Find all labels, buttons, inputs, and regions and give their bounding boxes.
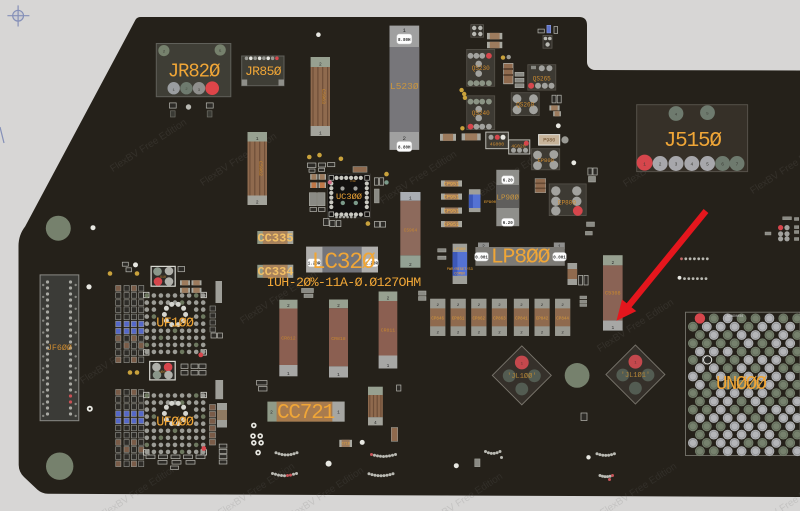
svg-text:2: 2	[387, 296, 390, 302]
svg-text:UNØØØ: UNØØØ	[716, 373, 767, 395]
svg-text:1: 1	[409, 195, 412, 201]
svg-text:CC335: CC335	[257, 231, 293, 245]
svg-text:UF1ØØ: UF1ØØ	[156, 316, 194, 331]
svg-text:4: 4	[690, 162, 693, 168]
svg-text:2: 2	[270, 410, 273, 416]
svg-text:1: 1	[643, 162, 646, 168]
svg-text:U00: U00	[160, 370, 166, 374]
svg-text:2: 2	[256, 200, 259, 206]
svg-text:PWR/RESET/S3: PWR/RESET/S3	[447, 267, 473, 272]
svg-text:CR812: CR812	[281, 336, 296, 342]
svg-text:6.20: 6.20	[503, 180, 514, 184]
svg-text:2: 2	[611, 260, 614, 266]
svg-text:C5964: C5964	[404, 227, 418, 233]
svg-text:LP9ØØ: LP9ØØ	[496, 193, 519, 202]
svg-text:IUH-2Ø%-11A-Ø.Ø127OHM: IUH-2Ø%-11A-Ø.Ø127OHM	[267, 275, 422, 290]
svg-text:CP863: CP863	[493, 318, 506, 322]
svg-text:J515Ø: J515Ø	[664, 130, 722, 153]
svg-text:NAND0000: NAND0000	[727, 315, 743, 319]
svg-text:1: 1	[287, 371, 290, 377]
svg-text:CR818: CR818	[331, 336, 346, 342]
svg-text:4G000: 4G000	[490, 141, 505, 147]
svg-text:UFØØØ: UFØØØ	[156, 415, 194, 430]
svg-text:UC3ØØ: UC3ØØ	[336, 192, 362, 202]
svg-text:COMBO: COMBO	[454, 273, 465, 277]
svg-text:1: 1	[387, 363, 390, 369]
svg-text:L523Ø: L523Ø	[390, 81, 419, 92]
svg-text:EP900: EP900	[484, 201, 497, 205]
svg-text:LP8ØØ: LP8ØØ	[491, 245, 551, 269]
svg-text:1: 1	[319, 131, 322, 137]
svg-text:U10: U10	[160, 275, 166, 279]
svg-text:C5962: C5962	[257, 161, 263, 176]
svg-text:JR85Ø: JR85Ø	[245, 64, 282, 79]
svg-text:0.001: 0.001	[553, 257, 566, 261]
svg-text:7: 7	[736, 162, 739, 168]
svg-text:4: 4	[374, 420, 377, 426]
svg-text:0.001: 0.001	[475, 257, 488, 261]
svg-text:CP951: CP951	[444, 181, 460, 187]
svg-text:2: 2	[287, 303, 290, 309]
svg-text:2: 2	[337, 303, 340, 309]
svg-text:5: 5	[706, 162, 709, 168]
svg-text:1: 1	[611, 325, 614, 331]
svg-text:CP841: CP841	[515, 318, 528, 322]
svg-text:EP800: EP800	[537, 157, 554, 164]
svg-text:8.80H: 8.80H	[398, 146, 411, 150]
svg-text:C718: C718	[342, 443, 350, 447]
svg-text:CP862: CP862	[473, 318, 486, 322]
svg-text:CP846: CP846	[431, 318, 444, 322]
svg-text:EP800: EP800	[558, 200, 576, 207]
svg-text:1: 1	[256, 136, 259, 142]
svg-text:C5368: C5368	[605, 291, 621, 297]
svg-text:6: 6	[721, 162, 724, 168]
svg-text:2: 2	[403, 135, 406, 142]
svg-text:CP951: CP951	[444, 208, 460, 214]
svg-text:P980: P980	[543, 138, 555, 144]
svg-text:2: 2	[319, 62, 322, 68]
svg-text:'JL1ØØ': 'JL1ØØ'	[507, 372, 536, 381]
svg-text:LC32Ø: LC32Ø	[312, 249, 376, 275]
svg-text:CR811: CR811	[381, 328, 396, 334]
svg-text:CP842: CP842	[536, 318, 549, 322]
svg-text:2: 2	[409, 262, 412, 268]
svg-text:3: 3	[675, 162, 678, 168]
svg-text:LP300: LP300	[454, 248, 466, 252]
svg-text:CP951: CP951	[444, 222, 460, 228]
svg-text:2: 2	[659, 162, 662, 168]
svg-text:JF6ØØ: JF6ØØ	[47, 343, 72, 353]
svg-text:JR82Ø: JR82Ø	[168, 61, 220, 83]
svg-text:CC721: CC721	[277, 402, 335, 425]
svg-text:QS240: QS240	[472, 110, 490, 117]
svg-text:CP844: CP844	[556, 318, 569, 322]
svg-text:CP951: CP951	[444, 194, 460, 200]
svg-text:4G020: 4G020	[511, 143, 526, 149]
svg-text:1: 1	[337, 372, 340, 378]
svg-text:8.80H: 8.80H	[398, 39, 411, 43]
svg-text:C30: C30	[350, 180, 356, 183]
svg-text:6.20: 6.20	[503, 222, 514, 226]
svg-text:QS230: QS230	[472, 65, 490, 72]
svg-text:QS265: QS265	[533, 76, 551, 83]
svg-text:QS260: QS260	[516, 101, 534, 108]
svg-text:C5963: C5963	[320, 89, 326, 104]
svg-text:'JL1Ø1': 'JL1Ø1'	[621, 371, 650, 380]
svg-text:1: 1	[337, 410, 340, 416]
svg-text:CP861: CP861	[452, 318, 465, 322]
